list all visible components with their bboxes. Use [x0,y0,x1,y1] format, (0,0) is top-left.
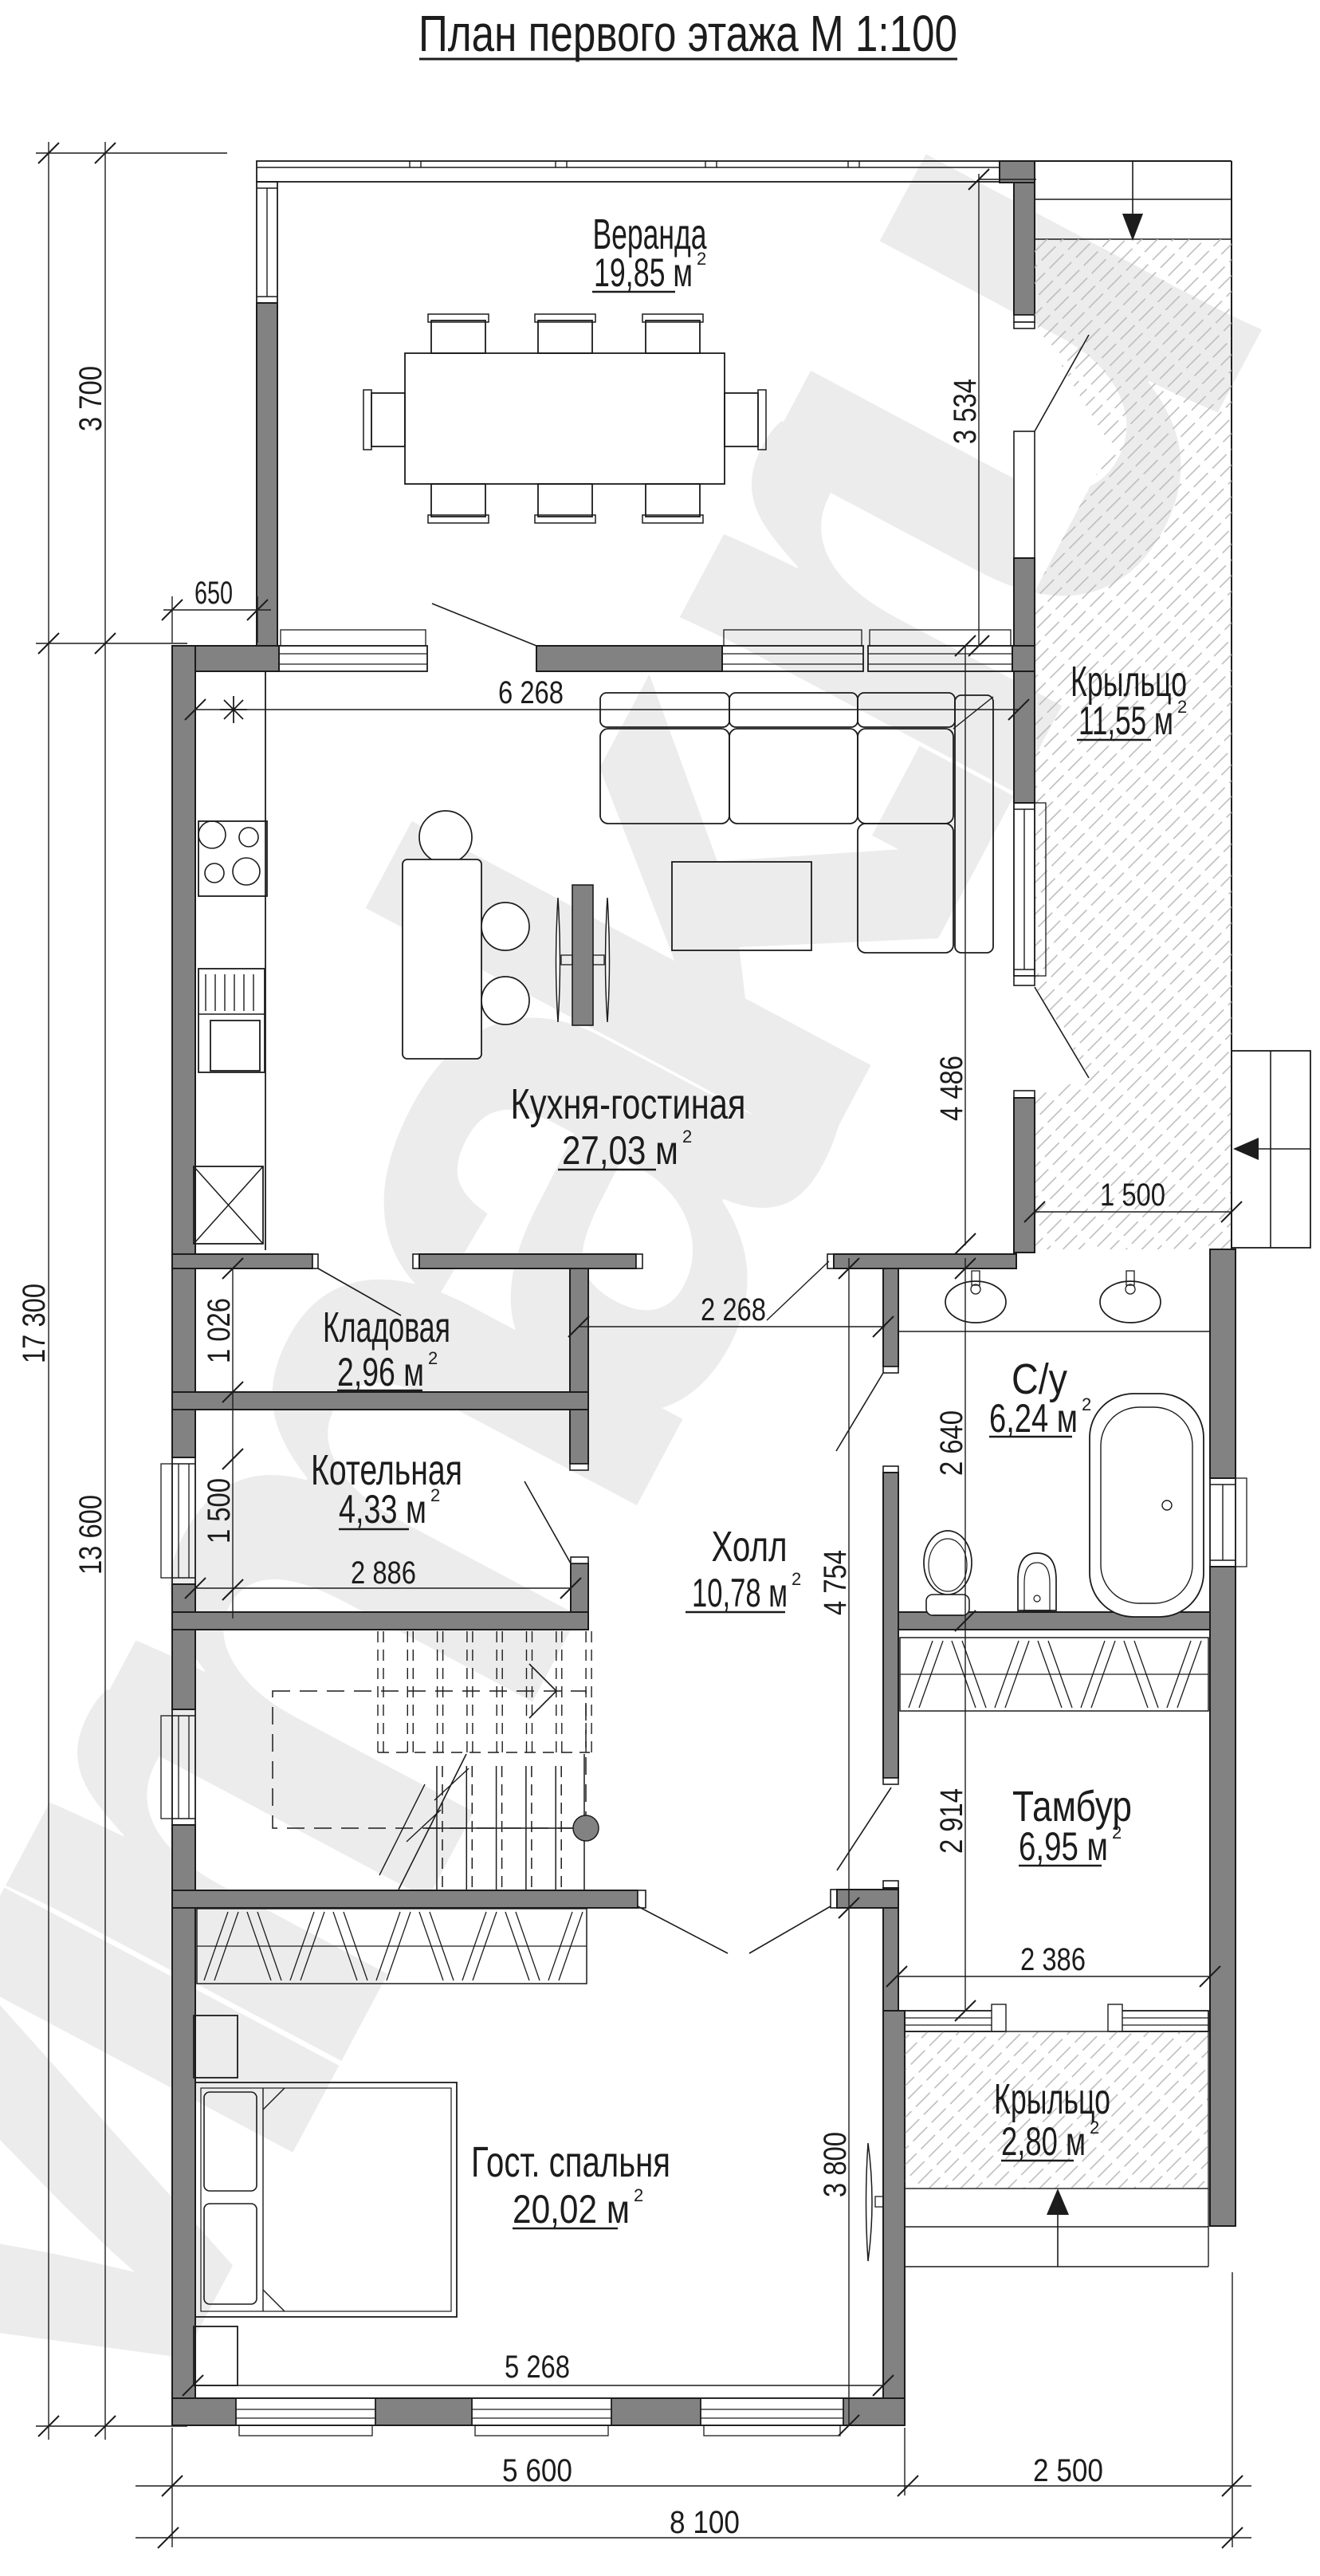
svg-text:1 500: 1 500 [1100,1178,1165,1213]
svg-text:Кухня-гостиная: Кухня-гостиная [511,1080,746,1128]
svg-text:1 500: 1 500 [202,1478,237,1544]
svg-text:20,02 м: 20,02 м [513,2187,630,2232]
svg-text:6,24 м: 6,24 м [989,1396,1078,1441]
svg-text:4 486: 4 486 [934,1056,969,1121]
svg-text:2,96 м: 2,96 м [337,1350,424,1394]
svg-text:2,80 м: 2,80 м [1001,2119,1086,2164]
svg-text:2: 2 [697,249,706,269]
svg-text:2: 2 [682,1127,692,1146]
svg-text:3 534: 3 534 [948,379,983,444]
svg-text:17 300: 17 300 [17,1284,52,1363]
svg-text:6 268: 6 268 [498,675,564,710]
svg-text:1 026: 1 026 [202,1298,237,1363]
svg-text:2: 2 [430,1485,440,1505]
svg-text:4 754: 4 754 [818,1550,853,1615]
svg-text:План первого этажа М 1:100: План первого этажа М 1:100 [418,5,957,62]
svg-text:2: 2 [634,2185,643,2205]
svg-text:2: 2 [1177,697,1187,717]
svg-text:2: 2 [1090,2118,1099,2137]
svg-text:27,03 м: 27,03 м [562,1128,678,1173]
svg-text:5 268: 5 268 [505,2350,570,2385]
svg-text:2: 2 [792,1569,801,1589]
svg-text:Холл: Холл [712,1523,788,1571]
svg-text:Кладовая: Кладовая [323,1304,450,1351]
svg-text:Крыльцо: Крыльцо [994,2075,1110,2123]
svg-text:2: 2 [428,1348,438,1368]
svg-text:3 700: 3 700 [73,366,108,431]
svg-text:2 386: 2 386 [1020,1942,1086,1977]
svg-text:19,85 м: 19,85 м [594,250,693,295]
svg-text:2 886: 2 886 [351,1555,416,1591]
svg-text:2: 2 [1082,1394,1091,1414]
svg-text:2 268: 2 268 [701,1292,766,1327]
svg-text:13 600: 13 600 [73,1495,108,1575]
svg-text:2: 2 [1112,1823,1122,1843]
svg-text:6,95 м: 6,95 м [1019,1824,1108,1869]
svg-text:8 100: 8 100 [670,2505,740,2540]
svg-text:5 600: 5 600 [502,2453,572,2488]
svg-text:2 640: 2 640 [934,1410,969,1476]
svg-text:Гост. спальня: Гост. спальня [471,2138,670,2186]
svg-text:3 800: 3 800 [818,2132,853,2197]
svg-text:2 914: 2 914 [934,1788,969,1854]
svg-text:650: 650 [194,576,233,611]
svg-text:10,78 м: 10,78 м [692,1571,788,1615]
svg-text:2 500: 2 500 [1033,2453,1103,2488]
svg-text:11,55 м: 11,55 м [1078,698,1173,743]
svg-text:4,33 м: 4,33 м [339,1487,426,1532]
